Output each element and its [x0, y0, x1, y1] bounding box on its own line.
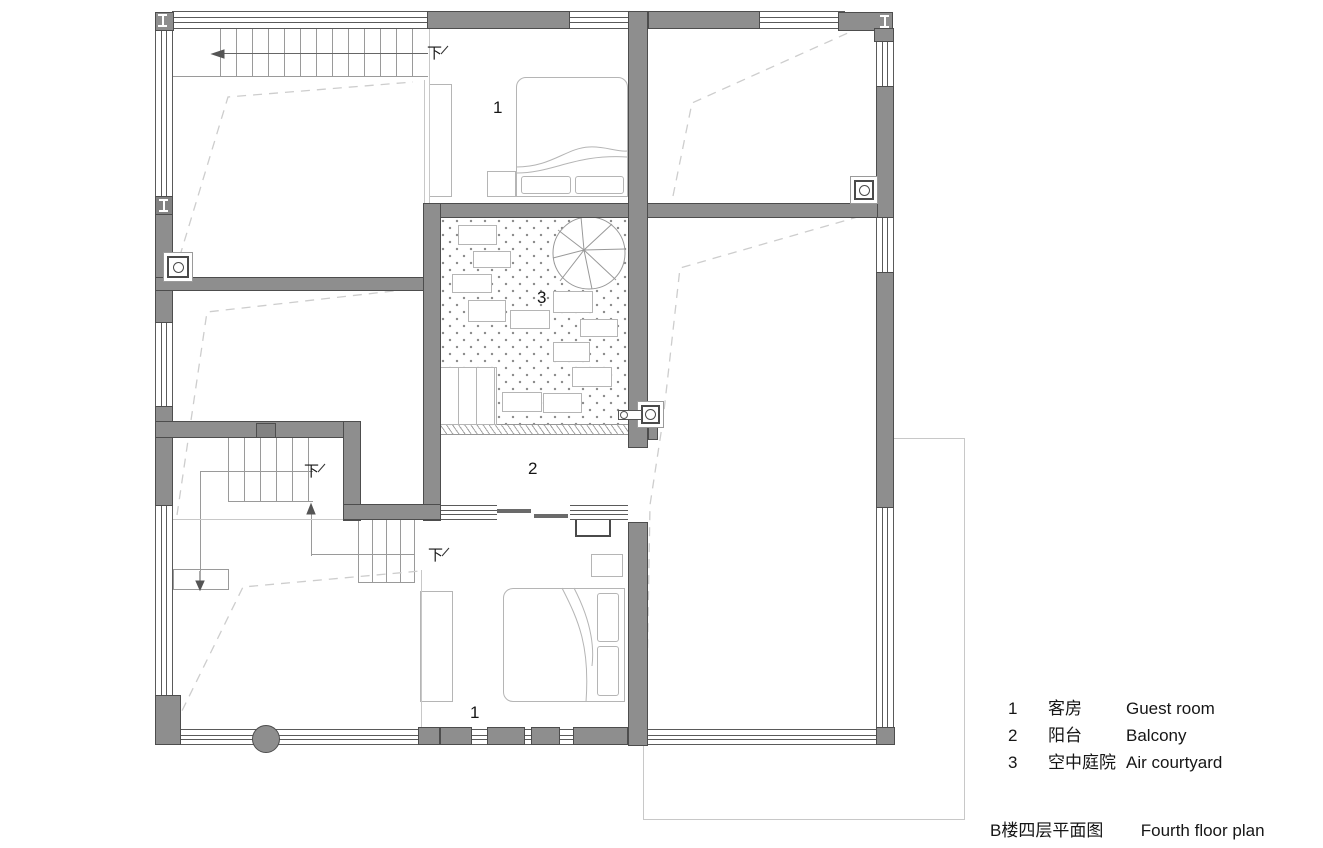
interior-wall [628, 522, 648, 746]
exterior-wall-bottom [487, 727, 525, 745]
courtyard-threshold [440, 424, 628, 435]
corner-column [874, 28, 894, 42]
page: { "colors": { "wall": "#8e8e8e", "wall_b… [0, 0, 1323, 848]
room-label-guest-top: 1 [493, 98, 502, 118]
corner-column [155, 695, 181, 745]
wardrobe [429, 84, 452, 197]
legend-number: 1 [1008, 695, 1048, 722]
stair-rail [200, 471, 201, 571]
stair-treads-lower-flight [358, 519, 415, 583]
round-column [252, 725, 280, 753]
lower-roof-outline-top [892, 438, 965, 439]
legend-name-en: Guest room [1126, 695, 1222, 722]
planter [510, 310, 550, 329]
exterior-wall-top [427, 11, 570, 29]
courtyard-deck [440, 367, 497, 425]
legend-number: 3 [1008, 749, 1048, 776]
room-label-courtyard: 3 [537, 288, 546, 308]
room-label-balcony: 2 [528, 459, 537, 479]
door-pivot [641, 405, 660, 424]
legend-name-en: Air courtyard [1126, 749, 1222, 776]
interior-wall [648, 424, 658, 440]
interior-wall [155, 277, 441, 291]
planter [543, 393, 582, 413]
corner-column [876, 727, 895, 745]
drawing-title-en: Fourth floor plan [1141, 821, 1265, 840]
legend-name-zh: 客房 [1048, 695, 1126, 722]
nightstand [487, 171, 516, 197]
legend: 1 客房 Guest room 2 阳台 Balcony 3 空中庭院 Air … [1008, 695, 1222, 776]
legend-name-zh: 阳台 [1048, 722, 1126, 749]
stair-boundary [172, 519, 344, 520]
interior-wall [423, 203, 878, 218]
legend-name-zh: 空中庭院 [1048, 749, 1126, 776]
pillow [597, 593, 619, 642]
exterior-wall-bottom [440, 727, 472, 745]
exterior-wall-bottom [573, 727, 628, 745]
floor-plan: 1 1 2 3 下 下 下 [0, 0, 1000, 848]
column-mark [880, 15, 889, 28]
pillow [597, 646, 619, 696]
planter [502, 392, 542, 412]
sliding-door-panel [497, 509, 531, 513]
column-mark [159, 199, 168, 212]
planter [458, 225, 497, 245]
stair-treads-upper-flight [228, 438, 313, 502]
drawing-title-zh: B楼四层平面图 [990, 816, 1136, 841]
void-edge [421, 570, 422, 727]
planter [580, 319, 618, 337]
stair-rail [311, 505, 312, 556]
planter [452, 274, 492, 293]
stair-landing [173, 569, 229, 590]
exterior-wall-right [876, 86, 894, 218]
sliding-door-panel [534, 514, 568, 518]
stair-rail [200, 471, 313, 472]
interior-wall [343, 504, 441, 520]
stair-down-label: 下 [428, 544, 443, 565]
room-label-guest-bottom: 1 [470, 703, 479, 723]
legend-number: 2 [1008, 722, 1048, 749]
lower-roof-outline-right [964, 438, 965, 820]
exterior-wall-right [876, 272, 894, 508]
legend-name-en: Balcony [1126, 722, 1222, 749]
window-balcony-right [570, 505, 628, 520]
column-mark [158, 14, 167, 27]
stair-edge-line [172, 76, 428, 77]
drain-detail [167, 256, 189, 278]
stair-edge-line [358, 582, 415, 583]
exterior-wall-bottom [418, 727, 440, 745]
stair-edge-line [228, 501, 313, 502]
exterior-wall-bottom [531, 727, 560, 745]
door-leaf [618, 410, 642, 420]
window-left [155, 28, 173, 700]
drain-detail [854, 180, 874, 200]
stair-direction-line [214, 53, 428, 54]
lower-roof-outline-bottom [643, 819, 965, 820]
pillow [575, 176, 624, 194]
interior-wall [628, 11, 648, 448]
stair-down-label: 下 [304, 460, 319, 481]
drawing-title: B楼四层平面图 Fourth floor plan [990, 816, 1265, 841]
interior-wall [423, 203, 441, 521]
pillow [521, 176, 571, 194]
wardrobe [420, 591, 453, 702]
exterior-wall-top [648, 11, 760, 29]
planter [553, 291, 593, 313]
window-balcony-left [440, 505, 497, 520]
door-frame [575, 520, 611, 537]
planter [468, 300, 506, 322]
stair-down-label: 下 [427, 42, 442, 63]
planter [553, 342, 590, 362]
nightstand [591, 554, 623, 577]
planter [572, 367, 612, 387]
lower-roof-outline-left [643, 745, 644, 820]
planter [473, 251, 511, 268]
column [256, 423, 276, 438]
